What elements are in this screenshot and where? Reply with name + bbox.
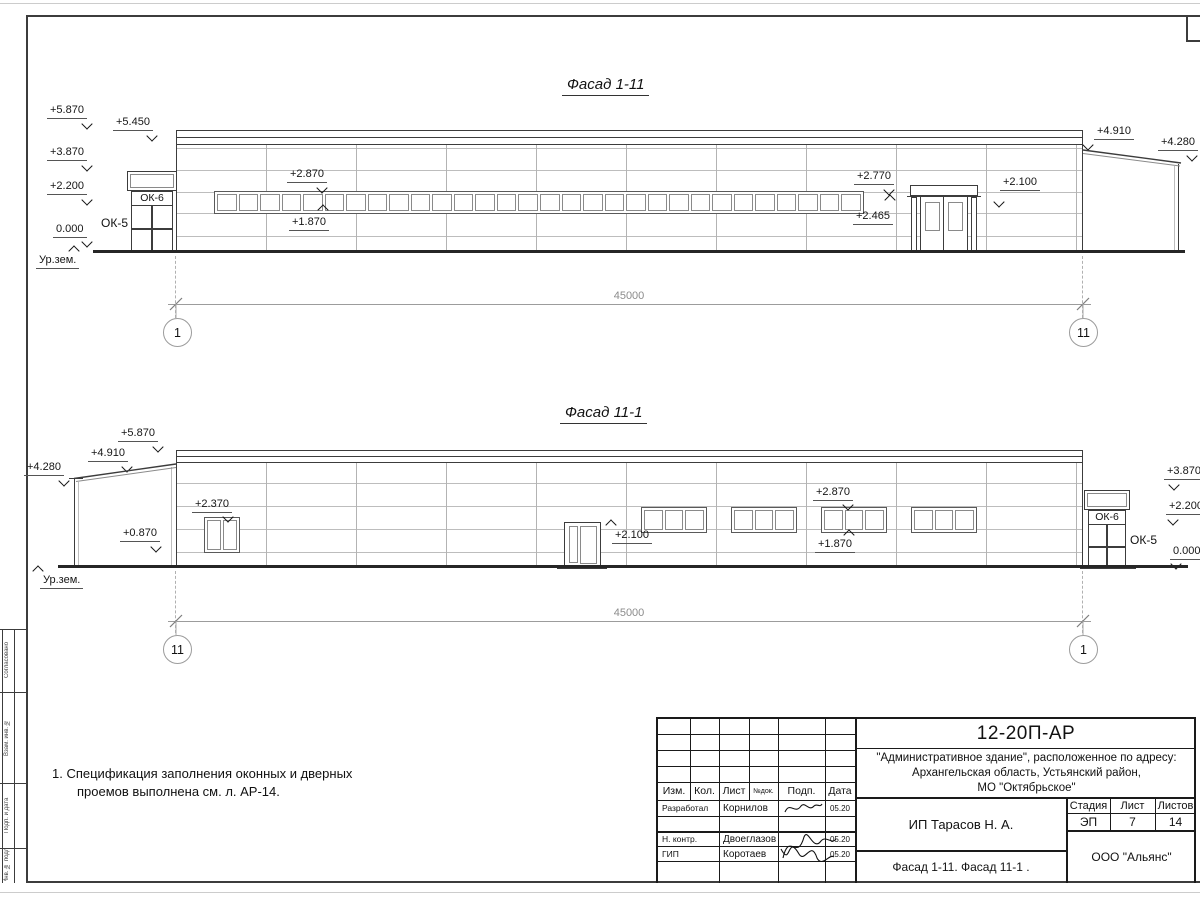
facade2-entry-transom	[1084, 490, 1130, 510]
sheet-number: 7	[1110, 814, 1155, 830]
facade2-title: Фасад 11-1	[560, 404, 647, 424]
window-pane	[777, 194, 797, 211]
side-stamp-label: Согласовано	[1, 630, 13, 690]
facade2-ground-line	[58, 565, 1188, 568]
facade2-parapet-line	[176, 462, 1083, 463]
transom-glass	[130, 174, 174, 188]
elevation-tick-down-icon	[81, 160, 92, 171]
elevation-mark: +0.870	[120, 527, 160, 542]
row-name: Коротаев	[720, 847, 778, 861]
window-pane	[935, 510, 954, 530]
facade2-window	[821, 507, 887, 533]
sheet-edge-top	[0, 3, 1200, 4]
extension-line	[175, 571, 176, 633]
header-sheets: Листов	[1155, 798, 1196, 813]
elevation-mark: +4.280	[24, 461, 64, 476]
extension-line	[1082, 256, 1083, 318]
elevation-mark: +1.870	[289, 216, 329, 231]
elevation-tick-down-icon	[121, 461, 132, 472]
panel-joint-line	[1076, 145, 1077, 251]
sheet-title: Фасад 1-11. Фасад 11-1 .	[856, 852, 1066, 882]
facade2-small-window	[204, 517, 240, 553]
elevation-tick-down-icon	[81, 194, 92, 205]
window-pane	[841, 194, 861, 211]
window-pane	[755, 510, 774, 530]
elevation-mark: 0.000	[1170, 545, 1200, 560]
project-address-line3: МО "Октябрьское"	[857, 780, 1196, 795]
facade2-annex-wall-inner	[78, 482, 79, 567]
window-pane	[540, 194, 560, 211]
client-name: ИП Тарасов Н. А.	[856, 799, 1066, 849]
ribbon-window-panes	[217, 194, 861, 211]
window-pane	[207, 520, 221, 550]
elevation-mark: +2.465	[853, 210, 893, 225]
panel-joint-line	[177, 148, 1082, 149]
window-pane	[644, 510, 663, 530]
row-date: 05.20	[825, 832, 855, 846]
elevation-mark: +2.770	[854, 170, 894, 185]
window-pane	[820, 194, 840, 211]
titleblock-line	[658, 816, 855, 817]
window-pane	[223, 520, 237, 550]
window-pane	[605, 194, 625, 211]
window-pane	[669, 194, 689, 211]
elevation-mark: +4.280	[1158, 136, 1198, 151]
window-pane	[685, 510, 704, 530]
elevation-tick-down-icon	[152, 441, 163, 452]
note-line1: 1. Спецификация заполнения оконных и две…	[52, 766, 352, 781]
window-pane	[914, 510, 933, 530]
window-pane	[775, 510, 794, 530]
header-kol: Кол.	[690, 783, 719, 799]
stage-value: ЭП	[1067, 814, 1110, 830]
window-pane	[562, 194, 582, 211]
header-podp: Подп.	[778, 783, 825, 799]
window-pane	[734, 194, 754, 211]
panel-joint-line	[177, 483, 1082, 484]
window-pane	[824, 510, 843, 530]
elevation-mark: +5.450	[113, 116, 153, 131]
elevation-tick-down-icon	[1167, 514, 1178, 525]
titleblock-line	[658, 861, 855, 862]
panel-joint-line	[626, 463, 627, 566]
elevation-tick-down-icon	[1168, 479, 1179, 490]
elevation-mark: +2.870	[287, 168, 327, 183]
facade1-ribbon-window	[214, 191, 864, 214]
window-panes	[207, 520, 237, 550]
axis-bubble: 1	[163, 318, 192, 347]
panel-joint-line	[896, 463, 897, 566]
window-pane	[497, 194, 517, 211]
elevation-mark: 0.000	[53, 223, 87, 238]
elevation-mark: +2.200	[1166, 500, 1200, 515]
facade1-entry-transom	[127, 171, 177, 191]
panel-joint-line	[1076, 463, 1077, 566]
facade2-annex-cap	[69, 478, 83, 479]
elevation-mark: +2.370	[192, 498, 232, 513]
facade2-ok6-label: ОК-6	[1089, 511, 1125, 525]
elevation-tick-down-icon	[1082, 139, 1093, 150]
window-pane	[665, 510, 684, 530]
facade1-parapet-line	[176, 137, 1083, 138]
door-mullion	[1089, 546, 1125, 548]
facade1-title: Фасад 1-11	[562, 76, 649, 96]
drawing-sheet: Согласовано Взам. инв. № Подп. и дата Ин…	[0, 0, 1200, 900]
window-pane	[755, 194, 775, 211]
organization-name: ООО "Альянс"	[1067, 832, 1196, 882]
elevation-mark: +5.870	[47, 104, 87, 119]
elevation-mark: +2.200	[47, 180, 87, 195]
facade2-ok5-label: ОК-5	[1130, 533, 1157, 547]
titleblock-line	[856, 748, 1196, 749]
facade2-parapet-line	[176, 456, 1083, 457]
panel-joint-line	[896, 145, 897, 251]
window-panes	[734, 510, 794, 530]
header-list: Лист	[719, 783, 749, 799]
window-pane	[239, 194, 259, 211]
frame-top	[26, 15, 1200, 17]
facade1-door-canopy	[910, 185, 978, 196]
panel-joint-line	[536, 463, 537, 566]
panel-joint-line	[266, 463, 267, 566]
sheets-total: 14	[1155, 814, 1196, 830]
window-pane	[282, 194, 302, 211]
sheet-edge-bottom	[0, 892, 1200, 893]
ground-level-label: Ур.зем.	[40, 574, 83, 589]
elevation-mark: +4.910	[88, 447, 128, 462]
axis-bubble: 1	[1069, 635, 1098, 664]
elevation-tick-down-icon	[150, 541, 161, 552]
panel-joint-line	[716, 463, 717, 566]
row-role: Разработал	[659, 801, 719, 815]
elevation-mark: +3.870	[47, 146, 87, 161]
door-column	[911, 197, 917, 251]
window-pane	[845, 510, 864, 530]
panel-joint-line	[446, 463, 447, 566]
elevation-tick-down-icon	[1186, 150, 1197, 161]
door-leaf	[580, 526, 597, 564]
window-pane	[454, 194, 474, 211]
row-name: Корнилов	[720, 801, 778, 815]
elevation-mark: +1.870	[815, 538, 855, 553]
project-address-line1: "Административное здание", расположенное…	[857, 750, 1196, 765]
transom-glass	[1087, 493, 1127, 507]
window-pane	[368, 194, 388, 211]
panel-joint-line	[986, 463, 987, 566]
header-stage: Стадия	[1067, 798, 1110, 813]
titleblock-line	[658, 734, 855, 735]
header-sheet: Лист	[1110, 798, 1155, 813]
panel-joint-line	[986, 145, 987, 251]
ground-level-label: Ур.зем.	[36, 254, 79, 269]
panel-joint-line	[356, 463, 357, 566]
document-code: 12-20П-АР	[856, 719, 1196, 748]
row-role: ГИП	[659, 847, 719, 861]
facade1-ground-line	[93, 250, 1185, 253]
facade2-window	[911, 507, 977, 533]
window-pane	[346, 194, 366, 211]
extension-line	[175, 256, 176, 318]
door-column	[971, 197, 977, 251]
header-izm: Изм.	[658, 783, 690, 799]
frame-left	[26, 15, 28, 883]
side-stamp-label: Взам. инв. №	[1, 694, 13, 781]
facade1-ok5-label: ОК-5	[101, 216, 128, 230]
window-panes	[644, 510, 704, 530]
door-mullion	[132, 228, 172, 230]
window-panes	[824, 510, 884, 530]
axis-bubble: 11	[163, 635, 192, 664]
panel-joint-line	[177, 552, 1082, 553]
facade2-annex-wall	[74, 479, 75, 567]
corner-box-bottom	[1186, 40, 1200, 42]
window-pane	[389, 194, 409, 211]
window-pane	[217, 194, 237, 211]
axis-bubble: 11	[1069, 318, 1098, 347]
header-data: Дата	[825, 783, 855, 799]
facade2-window	[731, 507, 797, 533]
window-pane	[475, 194, 495, 211]
elevation-mark: +3.870	[1164, 465, 1200, 480]
window-pane	[798, 194, 818, 211]
window-pane	[432, 194, 452, 211]
side-stamp-label: Подп. и дата	[1, 785, 13, 846]
side-stamp-line	[14, 629, 15, 883]
window-pane	[865, 510, 884, 530]
window-pane	[955, 510, 974, 530]
door-glass	[925, 202, 940, 231]
dimension-value: 45000	[589, 607, 669, 619]
window-pane	[411, 194, 431, 211]
window-pane	[734, 510, 753, 530]
facade2-dimension-line	[168, 621, 1091, 622]
door-side-panel	[569, 526, 578, 563]
elevation-tick-down-icon	[58, 475, 69, 486]
window-pane	[260, 194, 280, 211]
row-name: Двоеглазов	[720, 832, 778, 846]
corner-box-left	[1186, 15, 1188, 42]
project-address-line2: Архангельская область, Устьянский район,	[857, 765, 1196, 780]
side-stamp-line	[0, 692, 26, 693]
elevation-tick-down-icon	[81, 118, 92, 129]
window-pane	[712, 194, 732, 211]
titleblock-line	[658, 766, 855, 767]
facade1-dimension-line	[168, 304, 1091, 305]
titleblock-line	[658, 750, 855, 751]
door-leaf-split	[943, 197, 944, 250]
window-pane	[518, 194, 538, 211]
facade1-parapet-line	[176, 144, 1083, 145]
dimension-value: 45000	[589, 290, 669, 302]
elevation-tick-down-icon	[146, 130, 157, 141]
facade1-annex-wall	[1178, 164, 1179, 252]
window-panes	[914, 510, 974, 530]
facade2-corner-inner	[171, 467, 172, 567]
signature	[782, 799, 824, 817]
extension-line	[1082, 571, 1083, 633]
elevation-mark: +4.910	[1094, 125, 1134, 140]
side-stamp-line	[0, 783, 26, 784]
elevation-mark: +5.870	[118, 427, 158, 442]
door-glass	[948, 202, 963, 231]
window-pane	[648, 194, 668, 211]
window-pane	[691, 194, 711, 211]
note-line2: проемов выполнена см. л. АР-14.	[77, 784, 280, 799]
panel-joint-line	[806, 463, 807, 566]
side-stamp-label: Инв. № подл.	[1, 849, 13, 881]
row-date: 05.20	[825, 847, 855, 861]
row-date: 05.20	[825, 801, 855, 815]
elevation-mark: +2.100	[1000, 176, 1040, 191]
window-pane	[626, 194, 646, 211]
window-pane	[583, 194, 603, 211]
elevation-mark: +2.100	[612, 529, 652, 544]
row-role: Н. контр.	[659, 832, 719, 846]
header-ndok: №док.	[749, 783, 778, 799]
facade1-annex-wall-inner	[1174, 166, 1175, 252]
elevation-tick-down-icon	[81, 236, 92, 247]
facade1-ok6-label: ОК-6	[132, 192, 172, 206]
